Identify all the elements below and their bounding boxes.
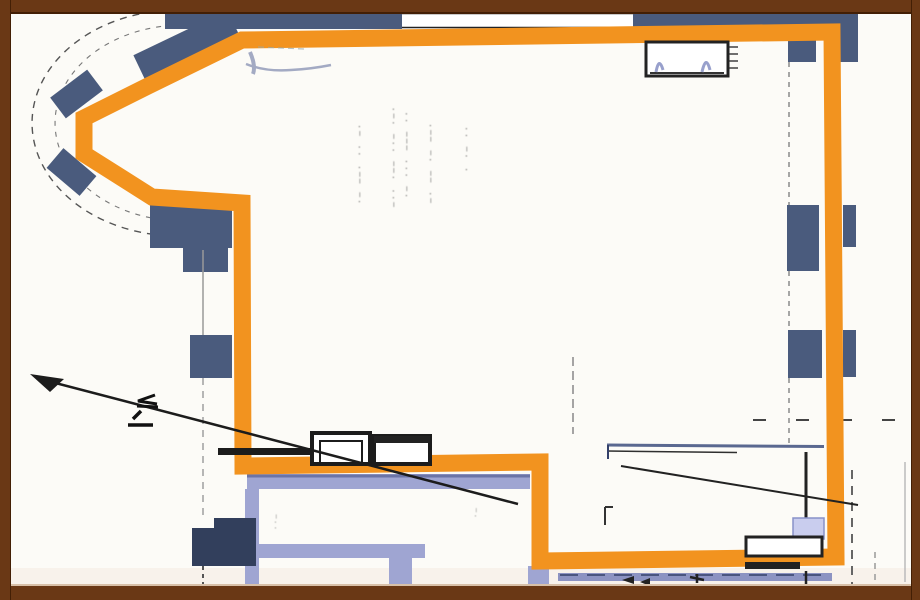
wall-pillar: [788, 38, 816, 62]
paper-background: [10, 12, 911, 584]
wall-bar: [745, 562, 800, 569]
rotated-annotation: ·—: [472, 507, 480, 518]
wall-pillar-outer: [843, 330, 856, 377]
fixture-outline: [646, 42, 728, 76]
rotated-annotation: · ·— ··: [463, 124, 471, 172]
door-frame-head: [374, 436, 430, 443]
floor-plan-drawing: [0, 0, 920, 600]
rotated-annotation: —·· ·—— ··— ·—·: [390, 105, 398, 207]
rotated-annotation: ··—: [272, 513, 280, 530]
rotated-annotation: ·— ——· ·· —·: [356, 122, 364, 204]
door-frame: [746, 537, 822, 556]
scan-border-right: [911, 0, 920, 600]
interior-wall: [259, 544, 425, 558]
scan-border-bottom: [0, 584, 920, 600]
floor-plan-scan: ·— ——· ·· —· —·· ·—— ··— ·—· ·— ··· ——— …: [0, 0, 920, 600]
wall-segment: [165, 12, 402, 29]
pillar-notch: [192, 518, 214, 528]
scan-border-top: [0, 0, 920, 14]
window-gap: [402, 12, 633, 29]
wall-bar: [218, 448, 310, 455]
window-fixture-box: [646, 42, 738, 76]
scan-border-left: [0, 0, 11, 600]
wall-pillar: [788, 330, 822, 378]
wall-pillar: [190, 335, 232, 378]
wall-pillar-outer: [843, 205, 856, 247]
rotated-annotation: ·— ··· ——— ··: [403, 109, 411, 198]
room-wall-line: [607, 445, 824, 447]
wall-pillar: [787, 205, 819, 271]
wall-pillar: [183, 248, 228, 272]
wall-pillar: [150, 205, 232, 248]
bottom-left-pillar: [192, 518, 256, 566]
rotated-annotation: —· —— ·— ——·: [427, 121, 435, 203]
